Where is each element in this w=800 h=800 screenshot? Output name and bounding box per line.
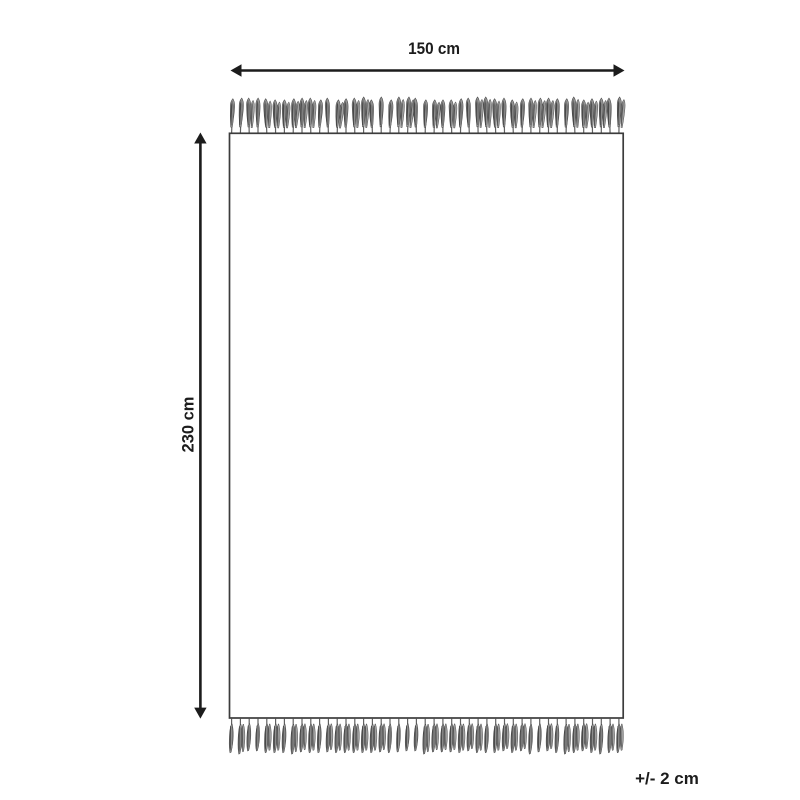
svg-text:150 cm: 150 cm [408,39,460,58]
svg-text:230 cm: 230 cm [178,397,197,453]
svg-text:+/- 2 cm: +/- 2 cm [635,769,699,788]
